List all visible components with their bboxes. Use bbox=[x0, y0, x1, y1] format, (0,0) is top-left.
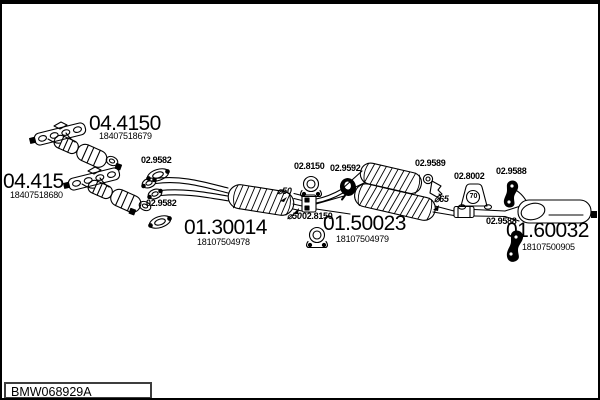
pipe-diameter-annotation: ⌀50 bbox=[287, 212, 302, 221]
part-code-gasket-front-upper: 02.9582 bbox=[141, 156, 171, 165]
drawing-code-box: BMW068929A bbox=[4, 382, 152, 399]
part-code-clamp-lower: 02.8150 bbox=[302, 212, 332, 221]
pipe-diameter-annotation: ⌀50 bbox=[277, 187, 292, 196]
exhaust-diagram-drawing bbox=[2, 2, 600, 400]
part-oem-rear-silencer: 18107500905 bbox=[522, 243, 575, 252]
part-code-hanger-lower: 02.9588 bbox=[486, 217, 516, 226]
pipe-diameter-annotation: ⌀65 bbox=[434, 195, 449, 204]
part-code-ring-gasket: 02.9592 bbox=[330, 164, 360, 173]
clamp-icon bbox=[301, 177, 322, 197]
footer-divider bbox=[2, 2, 600, 4]
part-code-centre-silencer: 01.50023 bbox=[323, 213, 406, 234]
part-oem-catalyst-lower: 18407518680 bbox=[10, 191, 63, 200]
part-code-bracket: 02.9589 bbox=[415, 159, 445, 168]
drawing-code: BMW068929A bbox=[11, 385, 92, 399]
part-code-gasket-front-lower: 02.9582 bbox=[146, 199, 176, 208]
part-code-catalyst-lower: 04.415 bbox=[3, 171, 64, 192]
part-code-clamp-upper: 02.8150 bbox=[294, 162, 324, 171]
rubber-mount-size-marking: 70 bbox=[466, 193, 481, 200]
part-code-front-silencer: 01.30014 bbox=[184, 217, 267, 238]
part-code-rubber-mount: 02.8002 bbox=[454, 172, 484, 181]
catalyst-lower-drawing bbox=[64, 167, 153, 215]
rear-silencer-drawing bbox=[511, 188, 597, 223]
part-oem-catalyst-upper: 18407518679 bbox=[99, 132, 152, 141]
part-oem-centre-silencer: 18107504979 bbox=[336, 235, 389, 244]
part-oem-front-silencer: 18107504978 bbox=[197, 238, 250, 247]
gasket-icon bbox=[148, 213, 172, 230]
hanger-icon bbox=[504, 180, 518, 207]
part-code-rear-silencer: 01.60032 bbox=[506, 220, 589, 241]
catalog-page: 04.4150 18407518679 04.415 18407518680 0… bbox=[0, 0, 600, 400]
part-code-hanger-upper: 02.9588 bbox=[496, 167, 526, 176]
